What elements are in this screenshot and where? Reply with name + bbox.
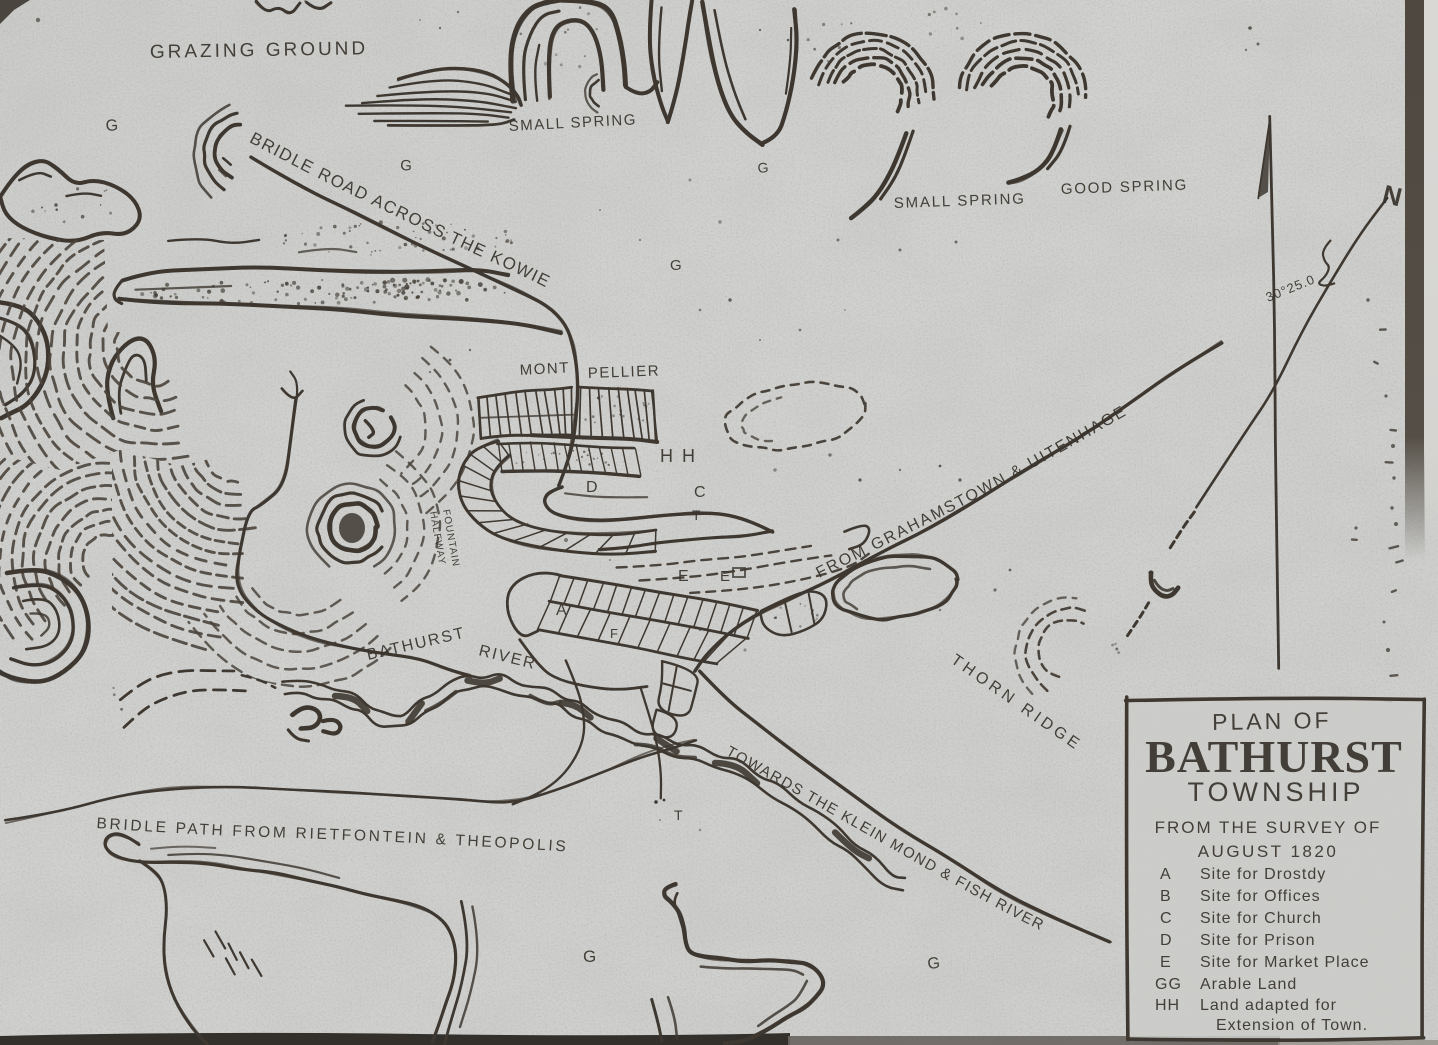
svg-text:A: A [1160, 866, 1172, 883]
svg-text:HH: HH [1155, 997, 1180, 1014]
svg-text:E: E [1160, 954, 1172, 971]
svg-text:GRAZING GROUND: GRAZING GROUND [150, 38, 369, 63]
svg-text:MONT: MONT [519, 359, 570, 379]
svg-text:G: G [757, 159, 769, 176]
svg-text:H H: H H [660, 446, 697, 466]
svg-text:G: G [400, 157, 413, 175]
svg-text:B: B [1160, 888, 1172, 905]
svg-text:G: G [583, 947, 596, 966]
svg-text:T: T [692, 507, 701, 523]
svg-text:E: E [678, 568, 689, 585]
svg-text:AUGUST 1820: AUGUST 1820 [1198, 842, 1339, 861]
svg-text:G: G [670, 257, 682, 274]
svg-text:G: G [927, 955, 941, 973]
svg-text:TOWNSHIP: TOWNSHIP [1187, 777, 1364, 807]
svg-text:Land adapted for: Land adapted for [1200, 997, 1337, 1014]
svg-text:Site for Market Place: Site for Market Place [1200, 954, 1370, 971]
svg-text:FROM THE SURVEY OF: FROM THE SURVEY OF [1155, 818, 1382, 837]
svg-text:Site for Prison: Site for Prison [1200, 932, 1315, 949]
svg-text:Site for Drostdy: Site for Drostdy [1200, 866, 1326, 883]
svg-text:GG: GG [1155, 976, 1182, 993]
svg-text:E: E [720, 568, 730, 585]
svg-text:F: F [610, 626, 618, 641]
svg-text:C: C [694, 484, 706, 501]
svg-text:Arable Land: Arable Land [1200, 976, 1297, 993]
svg-text:T: T [674, 807, 683, 823]
svg-text:G: G [105, 117, 119, 135]
svg-text:Site for Offices: Site for Offices [1200, 888, 1321, 905]
svg-text:C: C [1160, 910, 1173, 927]
svg-text:PELLIER: PELLIER [588, 362, 661, 382]
svg-text:BATHURST: BATHURST [1145, 731, 1403, 782]
svg-text:Site for Church: Site for Church [1200, 910, 1322, 927]
svg-text:Extension of Town.: Extension of Town. [1216, 1017, 1368, 1034]
svg-text:D: D [1160, 932, 1173, 949]
svg-text:D: D [586, 479, 598, 496]
